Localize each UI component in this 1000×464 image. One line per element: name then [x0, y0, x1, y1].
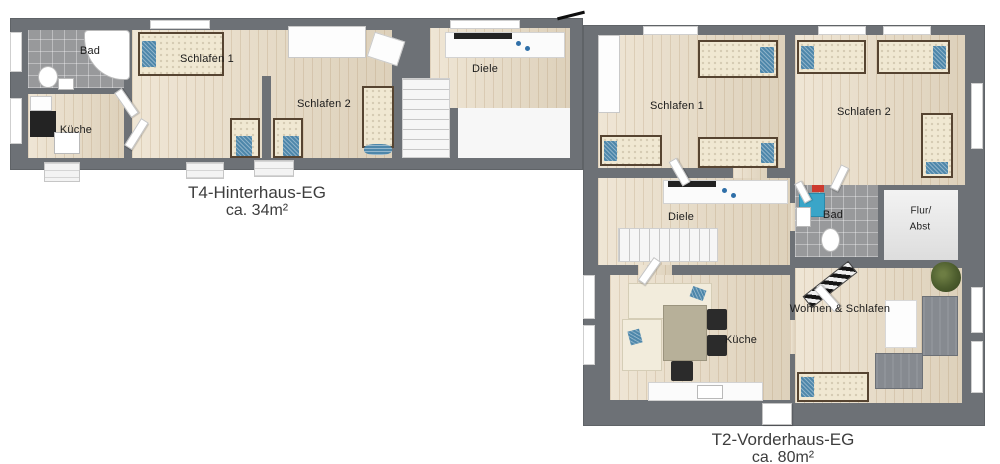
- burner-dot: [722, 188, 727, 193]
- window: [971, 83, 983, 149]
- entrance-steps: [186, 162, 224, 179]
- window: [450, 20, 520, 29]
- pillow: [801, 46, 814, 69]
- room-label-abst: Abst: [910, 222, 931, 233]
- corner-sofa: [622, 319, 662, 371]
- room-label-flur: Flur/: [911, 206, 932, 217]
- pillow: [604, 141, 617, 161]
- stove: [30, 111, 56, 137]
- pillow: [142, 41, 156, 67]
- bed: [273, 118, 303, 158]
- chair: [707, 309, 727, 330]
- entrance-door: [762, 403, 792, 425]
- window: [583, 275, 595, 319]
- bed: [362, 86, 394, 148]
- window: [10, 32, 22, 72]
- fridge: [30, 96, 52, 111]
- toilet: [821, 228, 840, 252]
- wardrobe: [598, 35, 620, 113]
- sofa: [922, 296, 958, 356]
- plan-title-hinterhaus: T4-Hinterhaus-EG: [137, 183, 377, 202]
- entrance-steps: [44, 162, 80, 182]
- toilet: [38, 66, 58, 88]
- washbasin: [58, 78, 74, 90]
- plan-title-vorderhaus: T2-Vorderhaus-EG: [663, 430, 903, 449]
- window: [643, 26, 698, 35]
- entrance-steps: [254, 160, 294, 177]
- room-label-kueche: Küche: [725, 334, 757, 346]
- plan-caption-vorderhaus: T2-Vorderhaus-EG ca. 80m²: [663, 430, 903, 464]
- sofa: [875, 353, 923, 389]
- room-label-schlafen1: Schlafen 1: [180, 53, 234, 65]
- kitchen-counter: [648, 382, 763, 401]
- plan-area-vorderhaus: ca. 80m²: [663, 449, 903, 464]
- plan-caption-hinterhaus: T4-Hinterhaus-EG ca. 34m²: [137, 183, 377, 220]
- cooktop: [668, 181, 716, 187]
- doorway: [790, 203, 795, 231]
- window: [971, 341, 983, 393]
- window: [150, 20, 210, 29]
- room-label-kueche: Küche: [60, 124, 92, 136]
- window: [583, 325, 595, 365]
- dining-table: [663, 305, 707, 361]
- bed: [921, 113, 953, 178]
- bed: [698, 40, 778, 78]
- room-label-schlafen2: Schlafen 2: [297, 98, 351, 110]
- window: [883, 26, 931, 35]
- pillow: [926, 162, 948, 174]
- floor-landing: [458, 108, 570, 158]
- bed: [230, 118, 260, 158]
- blue-rug: [364, 144, 392, 155]
- room-label-bad: Bad: [823, 209, 843, 221]
- room-label-diele: Diele: [472, 63, 498, 75]
- floorplan-canvas: Bad Küche Schlafen 1 Schlafen 2 Diele: [0, 0, 1000, 464]
- pillow: [236, 136, 252, 156]
- burner-dot: [731, 193, 736, 198]
- bed: [877, 40, 950, 74]
- bed: [698, 137, 778, 168]
- pillow: [761, 143, 774, 163]
- window: [971, 287, 983, 333]
- pillow: [801, 377, 814, 397]
- pillow: [690, 286, 707, 301]
- plant: [931, 262, 961, 292]
- room-label-schlafen1: Schlafen 1: [650, 100, 704, 112]
- staircase: [402, 78, 450, 158]
- kitchen-sink: [697, 385, 723, 399]
- pillow: [627, 329, 642, 346]
- cooktop: [454, 33, 512, 39]
- window: [10, 98, 22, 144]
- room-label-schlafen2: Schlafen 2: [837, 106, 891, 118]
- burner-dot: [525, 46, 530, 51]
- room-label-wohnen: Wohnen & Schlafen: [790, 303, 890, 315]
- kitchenette-counter: [445, 32, 565, 58]
- doorway: [733, 168, 767, 178]
- room-label-diele: Diele: [668, 211, 694, 223]
- towel: [812, 185, 824, 192]
- doorway: [790, 320, 795, 354]
- staircase: [618, 228, 718, 262]
- building-hinterhaus: Bad Küche Schlafen 1 Schlafen 2 Diele: [10, 18, 583, 170]
- window: [818, 26, 866, 35]
- washbasin: [796, 207, 811, 227]
- burner-dot: [516, 41, 521, 46]
- wall-stub: [262, 76, 271, 158]
- chair: [671, 361, 693, 381]
- bed: [797, 372, 869, 402]
- building-vorderhaus: Schlafen 1 Schlafen 2 Diele Bad Flur/ Ab…: [583, 25, 985, 426]
- wardrobe: [288, 26, 366, 58]
- bed: [797, 40, 866, 74]
- room-label-bad: Bad: [80, 45, 100, 57]
- pillow: [283, 136, 299, 156]
- pillow: [933, 46, 946, 69]
- bed: [600, 135, 662, 166]
- plan-area-hinterhaus: ca. 34m²: [137, 202, 377, 220]
- pillow: [760, 47, 774, 73]
